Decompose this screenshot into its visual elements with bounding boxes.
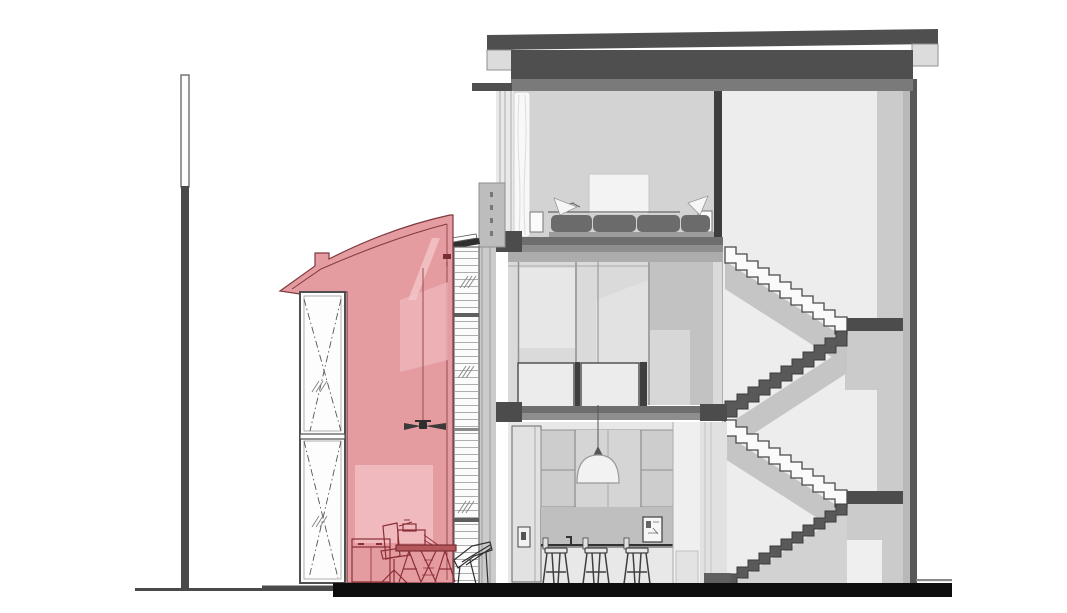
fascia-left [487,50,513,70]
stair-wall-band-top [877,90,904,318]
ground-line-right [916,579,952,581]
curtain [514,92,530,237]
stool-back [543,538,548,549]
louver-divider [454,428,479,431]
section-drawing-canvas [0,0,1067,613]
balustrade-post [640,362,647,412]
roof [472,29,938,91]
cabinet-handle [376,543,382,545]
headboard [589,174,649,214]
cabinet-handle [358,543,364,545]
left-wall [478,183,505,585]
nightstand-left [530,212,543,232]
mezzanine [508,252,722,412]
fridge-dispenser-detail [521,532,526,540]
bedroom-right-mullion [714,85,722,237]
bedroom [496,85,722,239]
picture-frame [643,517,662,542]
stool-seat [545,548,567,553]
desk-top [396,545,456,551]
right-wall [903,79,917,585]
annex-section-highlight[interactable] [280,215,456,586]
pole-upper [181,75,189,187]
stair-side-column [700,422,727,585]
annex-window-midrail [300,434,345,439]
balustrade-panel-1 [518,363,574,411]
roof-top-slab [487,29,938,50]
ground-bar [333,583,952,597]
parapet-mark [490,231,493,236]
stair-base-panel [845,540,882,585]
section-drawing [0,0,1067,613]
stair-landing-1 [844,318,904,331]
louver-divider [454,518,479,522]
pole-lower [181,186,189,591]
stair-wall-band-mid [845,331,904,390]
louver-divider [454,313,479,317]
kitchen [508,405,731,590]
main-house [472,29,938,590]
stair-wall-band-mid2 [877,390,904,491]
parapet-mark [490,218,493,223]
parapet-mark [490,192,493,197]
parapet-mark [490,205,493,210]
stool-seat [585,548,607,553]
picture-frame-art [646,521,651,528]
counter-edge [541,544,673,547]
stool-back [624,538,629,549]
louver-slats [455,248,478,584]
fascia-right [912,44,938,66]
canopy [472,83,512,91]
ground-step [262,586,335,590]
roof-soffit [511,79,913,91]
annex-window [300,292,345,583]
mezzanine-ceiling-trim [508,252,722,262]
balustrade-panel-2 [581,363,639,411]
stool-seat [626,548,648,553]
site-pole [181,75,189,591]
pillows [551,215,710,232]
stairwell [722,90,917,586]
glass-reflection-1 [519,268,575,348]
fridge [512,426,541,582]
stool-back [583,538,588,549]
roof-band [511,50,913,79]
section-tag [443,254,451,259]
mezzanine-column-light [650,330,690,405]
fan-hub [419,422,427,429]
low-cabinet [676,551,698,585]
annex-light-patch-1 [355,465,433,543]
balustrade-post [575,362,580,412]
left-wall-strip [478,247,496,585]
